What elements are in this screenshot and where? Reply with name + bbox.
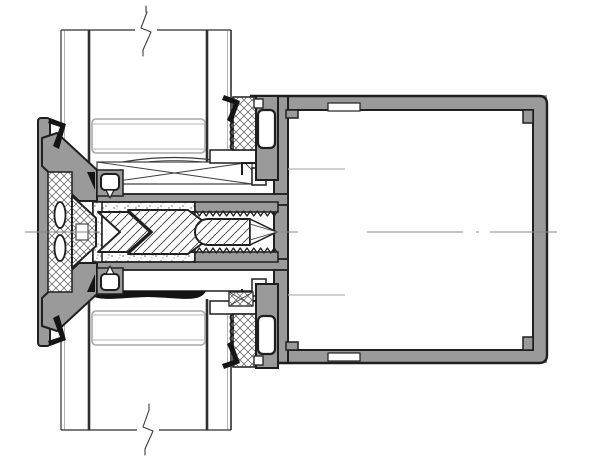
bead-chamber (258, 316, 275, 354)
screw-tip (250, 219, 277, 245)
bead-chamber (258, 110, 275, 148)
tube-outer-outline (250, 96, 547, 363)
break-line-bottom (143, 404, 153, 455)
screw-shank-hatch (195, 219, 250, 245)
tube-top-wall (250, 95, 547, 110)
tube-bottom-groove (328, 353, 360, 361)
tube-inner-outline (288, 110, 533, 350)
tube-corner-step-top (523, 110, 533, 123)
fastening-screw (98, 210, 277, 254)
spacer-detail-lines (93, 315, 204, 340)
isolator-slot (55, 202, 66, 228)
tube-bottom-wall (250, 349, 547, 363)
tube-right-wall (533, 95, 547, 363)
break-line-top (141, 6, 151, 56)
cad-drawing-canvas (0, 0, 600, 464)
mullion-section-drawing (0, 0, 600, 464)
spacer-detail-lines (93, 124, 204, 149)
rebate-ledge-top (210, 150, 256, 163)
break-zigzag (143, 404, 153, 455)
interlock-slot-bottom (101, 274, 119, 290)
bead-clip-slot (254, 99, 263, 108)
glazing-unit-top (61, 30, 238, 166)
mullion-tube (250, 95, 547, 363)
bead-clip-slot (254, 356, 263, 365)
tube-bottom-lip (286, 342, 298, 350)
tube-top-lip (286, 110, 298, 118)
tube-top-groove (328, 103, 360, 111)
isolator-slot (55, 235, 66, 261)
break-zigzag (141, 6, 151, 56)
interlock-slot-top (101, 174, 119, 190)
tube-corner-step-bottom (523, 337, 533, 350)
